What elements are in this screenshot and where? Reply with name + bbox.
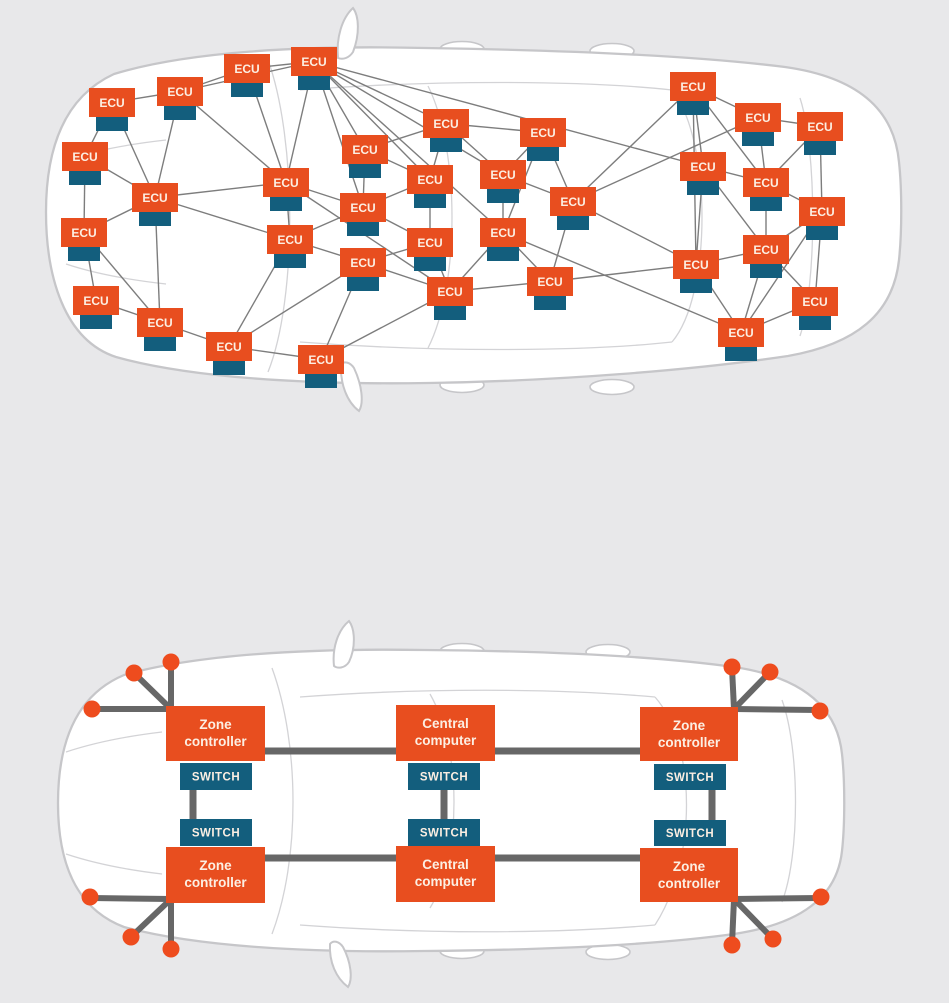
ecu-label: ECU: [490, 226, 515, 240]
switch-label: SWITCH: [192, 772, 240, 784]
ecu-label: ECU: [680, 80, 705, 94]
zone-controller-rear-left: Zonecontroller: [166, 847, 265, 903]
sensor-dot: [82, 889, 99, 906]
ecu-label: ECU: [71, 226, 96, 240]
central-computer-rear: Centralcomputer: [396, 846, 495, 902]
wheel-bump: [590, 380, 634, 395]
ecu-label: ECU: [147, 316, 172, 330]
ecu-label: ECU: [728, 326, 753, 340]
ecu-connector: [139, 211, 171, 226]
ecu-label: ECU: [273, 176, 298, 190]
sensor-dot: [812, 703, 829, 720]
ecu-connector: [534, 295, 566, 310]
ecu-connector: [687, 180, 719, 195]
ecu-label: ECU: [167, 85, 192, 99]
zone-controller-box: [640, 848, 738, 902]
ecu-connector: [806, 225, 838, 240]
ecu-connector: [347, 276, 379, 291]
sensor-dot: [126, 665, 143, 682]
automotive-architecture-infographic: ECUECUECUECUECUECUECUECUECUECUECUECUECUE…: [0, 0, 949, 1003]
ecu-connector: [487, 246, 519, 261]
ecu-connector: [347, 221, 379, 236]
ecu-connector: [557, 215, 589, 230]
ecu-connector: [349, 163, 381, 178]
ecu-connector: [680, 278, 712, 293]
ecu-connector: [750, 263, 782, 278]
sensor-link-line: [734, 709, 819, 710]
sensor-dot: [163, 941, 180, 958]
ecu-label: ECU: [753, 243, 778, 257]
switch-node: SWITCH: [180, 763, 252, 790]
ecu-label: ECU: [350, 256, 375, 270]
switch-node: SWITCH: [654, 764, 726, 790]
ecu-connector: [799, 315, 831, 330]
ecu-label: ECU: [99, 96, 124, 110]
ecu-connector: [69, 170, 101, 185]
ecu-connector: [274, 253, 306, 268]
sensor-dot: [762, 664, 779, 681]
ecu-connector: [231, 82, 263, 97]
ecu-label: ECU: [807, 120, 832, 134]
ecu-label: ECU: [301, 55, 326, 69]
ecu-label: ECU: [433, 117, 458, 131]
car-body-outline: [58, 650, 844, 952]
zonal-architecture-car: [58, 621, 844, 987]
ecu-label: ECU: [530, 126, 555, 140]
architecture-scene: ECUECUECUECUECUECUECUECUECUECUECUECUECUE…: [0, 0, 949, 1003]
ecu-connector: [414, 193, 446, 208]
ecu-label: ECU: [234, 62, 259, 76]
ecu-label: ECU: [690, 160, 715, 174]
ecu-connector: [144, 336, 176, 351]
switch-node: SWITCH: [180, 819, 252, 846]
zone-controller-front-right: Zonecontroller: [640, 707, 738, 761]
ecu-label: ECU: [802, 295, 827, 309]
sensor-dot: [123, 929, 140, 946]
ecu-connector: [804, 140, 836, 155]
switch-node: SWITCH: [654, 820, 726, 846]
ecu-label: ECU: [537, 275, 562, 289]
switch-label: SWITCH: [666, 772, 714, 784]
ecu-connector: [750, 196, 782, 211]
ecu-connector: [725, 346, 757, 361]
switch-label: SWITCH: [666, 828, 714, 840]
ecu-label: ECU: [277, 233, 302, 247]
ecu-label: ECU: [308, 353, 333, 367]
zone-controller-front-left: Zonecontroller: [166, 706, 265, 761]
switch-label: SWITCH: [420, 828, 468, 840]
sensor-link-line: [91, 898, 171, 899]
ecu-label: ECU: [560, 195, 585, 209]
ecu-label: ECU: [142, 191, 167, 205]
ecu-connector: [213, 360, 245, 375]
ecu-connector: [742, 131, 774, 146]
sensor-dot: [84, 701, 101, 718]
switch-label: SWITCH: [192, 828, 240, 840]
ecu-connector: [298, 75, 330, 90]
central-computer-front: Centralcomputer: [396, 705, 495, 761]
switch-label: SWITCH: [420, 772, 468, 784]
ecu-connector: [430, 137, 462, 152]
ecu-label: ECU: [683, 258, 708, 272]
ecu-label: ECU: [745, 111, 770, 125]
ecu-label: ECU: [437, 285, 462, 299]
sensor-dot: [765, 931, 782, 948]
sensor-dot: [724, 659, 741, 676]
zone-controller-rear-right: Zonecontroller: [640, 848, 738, 902]
switch-node: SWITCH: [408, 819, 480, 846]
ecu-label: ECU: [809, 205, 834, 219]
ecu-connector: [487, 188, 519, 203]
ecu-connector: [270, 196, 302, 211]
ecu-label: ECU: [417, 236, 442, 250]
sensor-dot: [163, 654, 180, 671]
ecu-connector: [96, 116, 128, 131]
ecu-label: ECU: [417, 173, 442, 187]
ecu-connector: [164, 105, 196, 120]
ecu-connector: [80, 314, 112, 329]
sensor-dot: [724, 937, 741, 954]
ecu-connector: [414, 256, 446, 271]
ecu-label: ECU: [72, 150, 97, 164]
ecu-connector: [527, 146, 559, 161]
ecu-connector: [305, 373, 337, 388]
ecu-label: ECU: [490, 168, 515, 182]
sensor-dot: [813, 889, 830, 906]
ecu-label: ECU: [216, 340, 241, 354]
ecu-connector: [434, 305, 466, 320]
zone-controller-box: [640, 707, 738, 761]
ecu-label: ECU: [352, 143, 377, 157]
switch-node: SWITCH: [408, 763, 480, 790]
sensor-link-line: [734, 898, 820, 899]
ecu-label: ECU: [83, 294, 108, 308]
ecu-connector: [68, 246, 100, 261]
ecu-connector: [677, 100, 709, 115]
ecu-label: ECU: [350, 201, 375, 215]
ecu-label: ECU: [753, 176, 778, 190]
